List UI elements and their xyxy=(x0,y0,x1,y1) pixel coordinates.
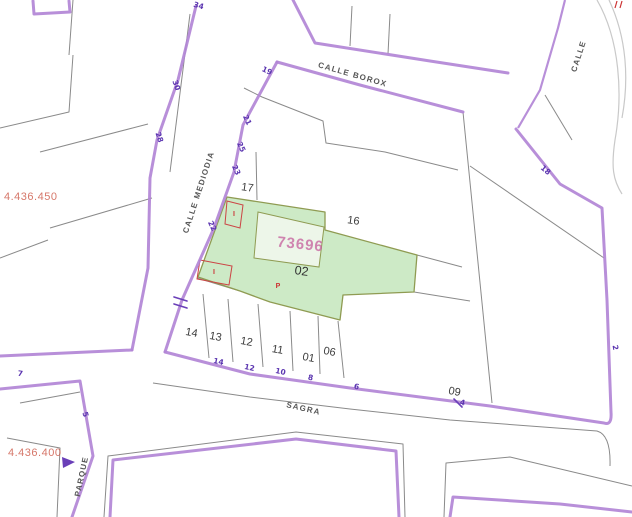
parcel-number-label: 16 xyxy=(347,214,361,228)
map-viewport[interactable]: 4.436.450 4.436.400 CALLE BOROX CALLE ME… xyxy=(0,0,632,517)
parcel-number-label: 02 xyxy=(294,263,310,279)
parcel-number-label: 12 xyxy=(239,335,253,349)
parcel-number-label: 14 xyxy=(184,326,198,340)
parcel-number-label: 11 xyxy=(271,343,284,357)
interior-mark-label: I xyxy=(233,211,235,218)
parcel-number-label: 06 xyxy=(322,345,336,359)
parcel-number-label: 17 xyxy=(241,181,255,195)
parcel-number-label: 09 xyxy=(447,385,461,399)
coordinate-label: 4.436.400 xyxy=(8,447,61,459)
parcel-number-label: 01 xyxy=(301,351,315,365)
interior-mark-label: I xyxy=(213,269,215,276)
interior-mark-label: P xyxy=(276,283,281,290)
coordinate-label: 4.436.450 xyxy=(4,191,57,203)
parcel-number-label: 13 xyxy=(208,330,222,344)
cadastral-map: 4.436.450 4.436.400 CALLE BOROX CALLE ME… xyxy=(0,0,632,517)
